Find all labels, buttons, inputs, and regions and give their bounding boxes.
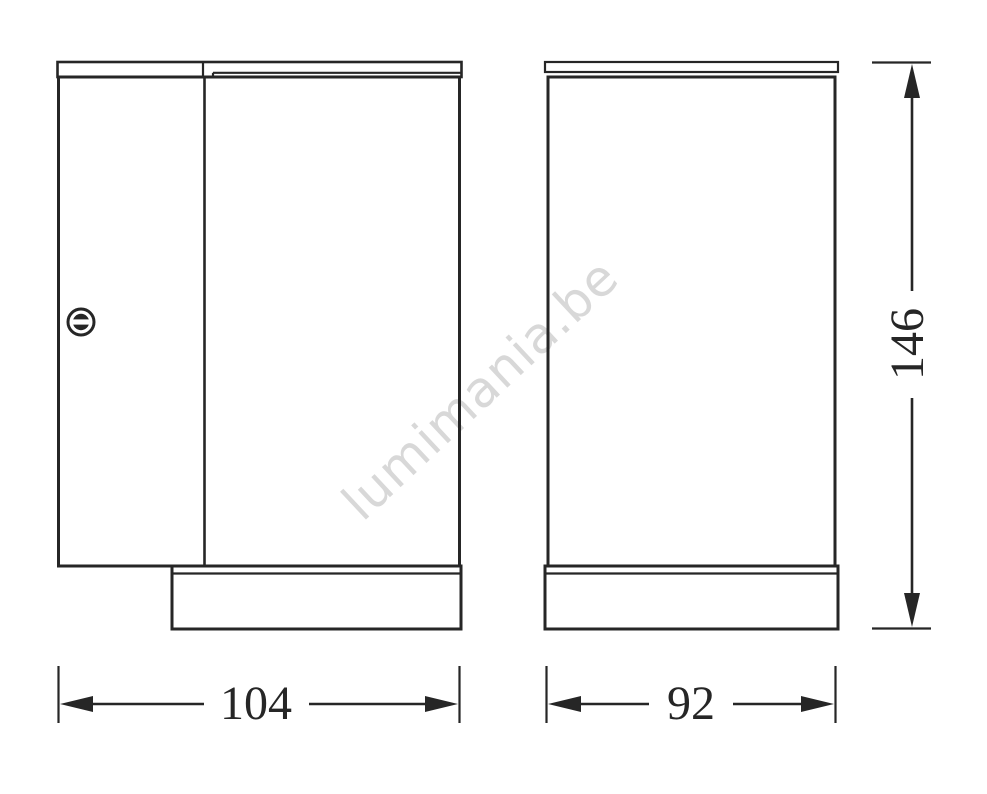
side-width-label: 104 [220, 677, 292, 730]
technical-drawing-svg: lumimania.be [0, 0, 987, 794]
screw-head-icon [68, 309, 94, 335]
screw-slot [73, 319, 90, 324]
width-dimension-side: 104 [59, 666, 460, 730]
front-top-cap [545, 62, 838, 72]
dim-arrow-down [904, 593, 920, 627]
width-dimension-front: 92 [547, 666, 836, 730]
front-base [545, 566, 838, 629]
drawing-page: lumimania.be [0, 0, 987, 794]
dim-arrow-left [60, 696, 93, 712]
dim-arrow-left [548, 696, 581, 712]
dim-arrow-right [801, 696, 834, 712]
height-dimension: 146 [872, 63, 934, 629]
height-label: 146 [881, 308, 934, 380]
dim-arrow-up [904, 64, 920, 98]
dim-arrow-right [425, 696, 458, 712]
side-top-cap [58, 62, 462, 77]
side-view [58, 62, 462, 629]
front-view [545, 62, 838, 629]
side-base [172, 566, 461, 629]
watermark-text: lumimania.be [331, 248, 630, 532]
front-width-label: 92 [667, 677, 715, 730]
